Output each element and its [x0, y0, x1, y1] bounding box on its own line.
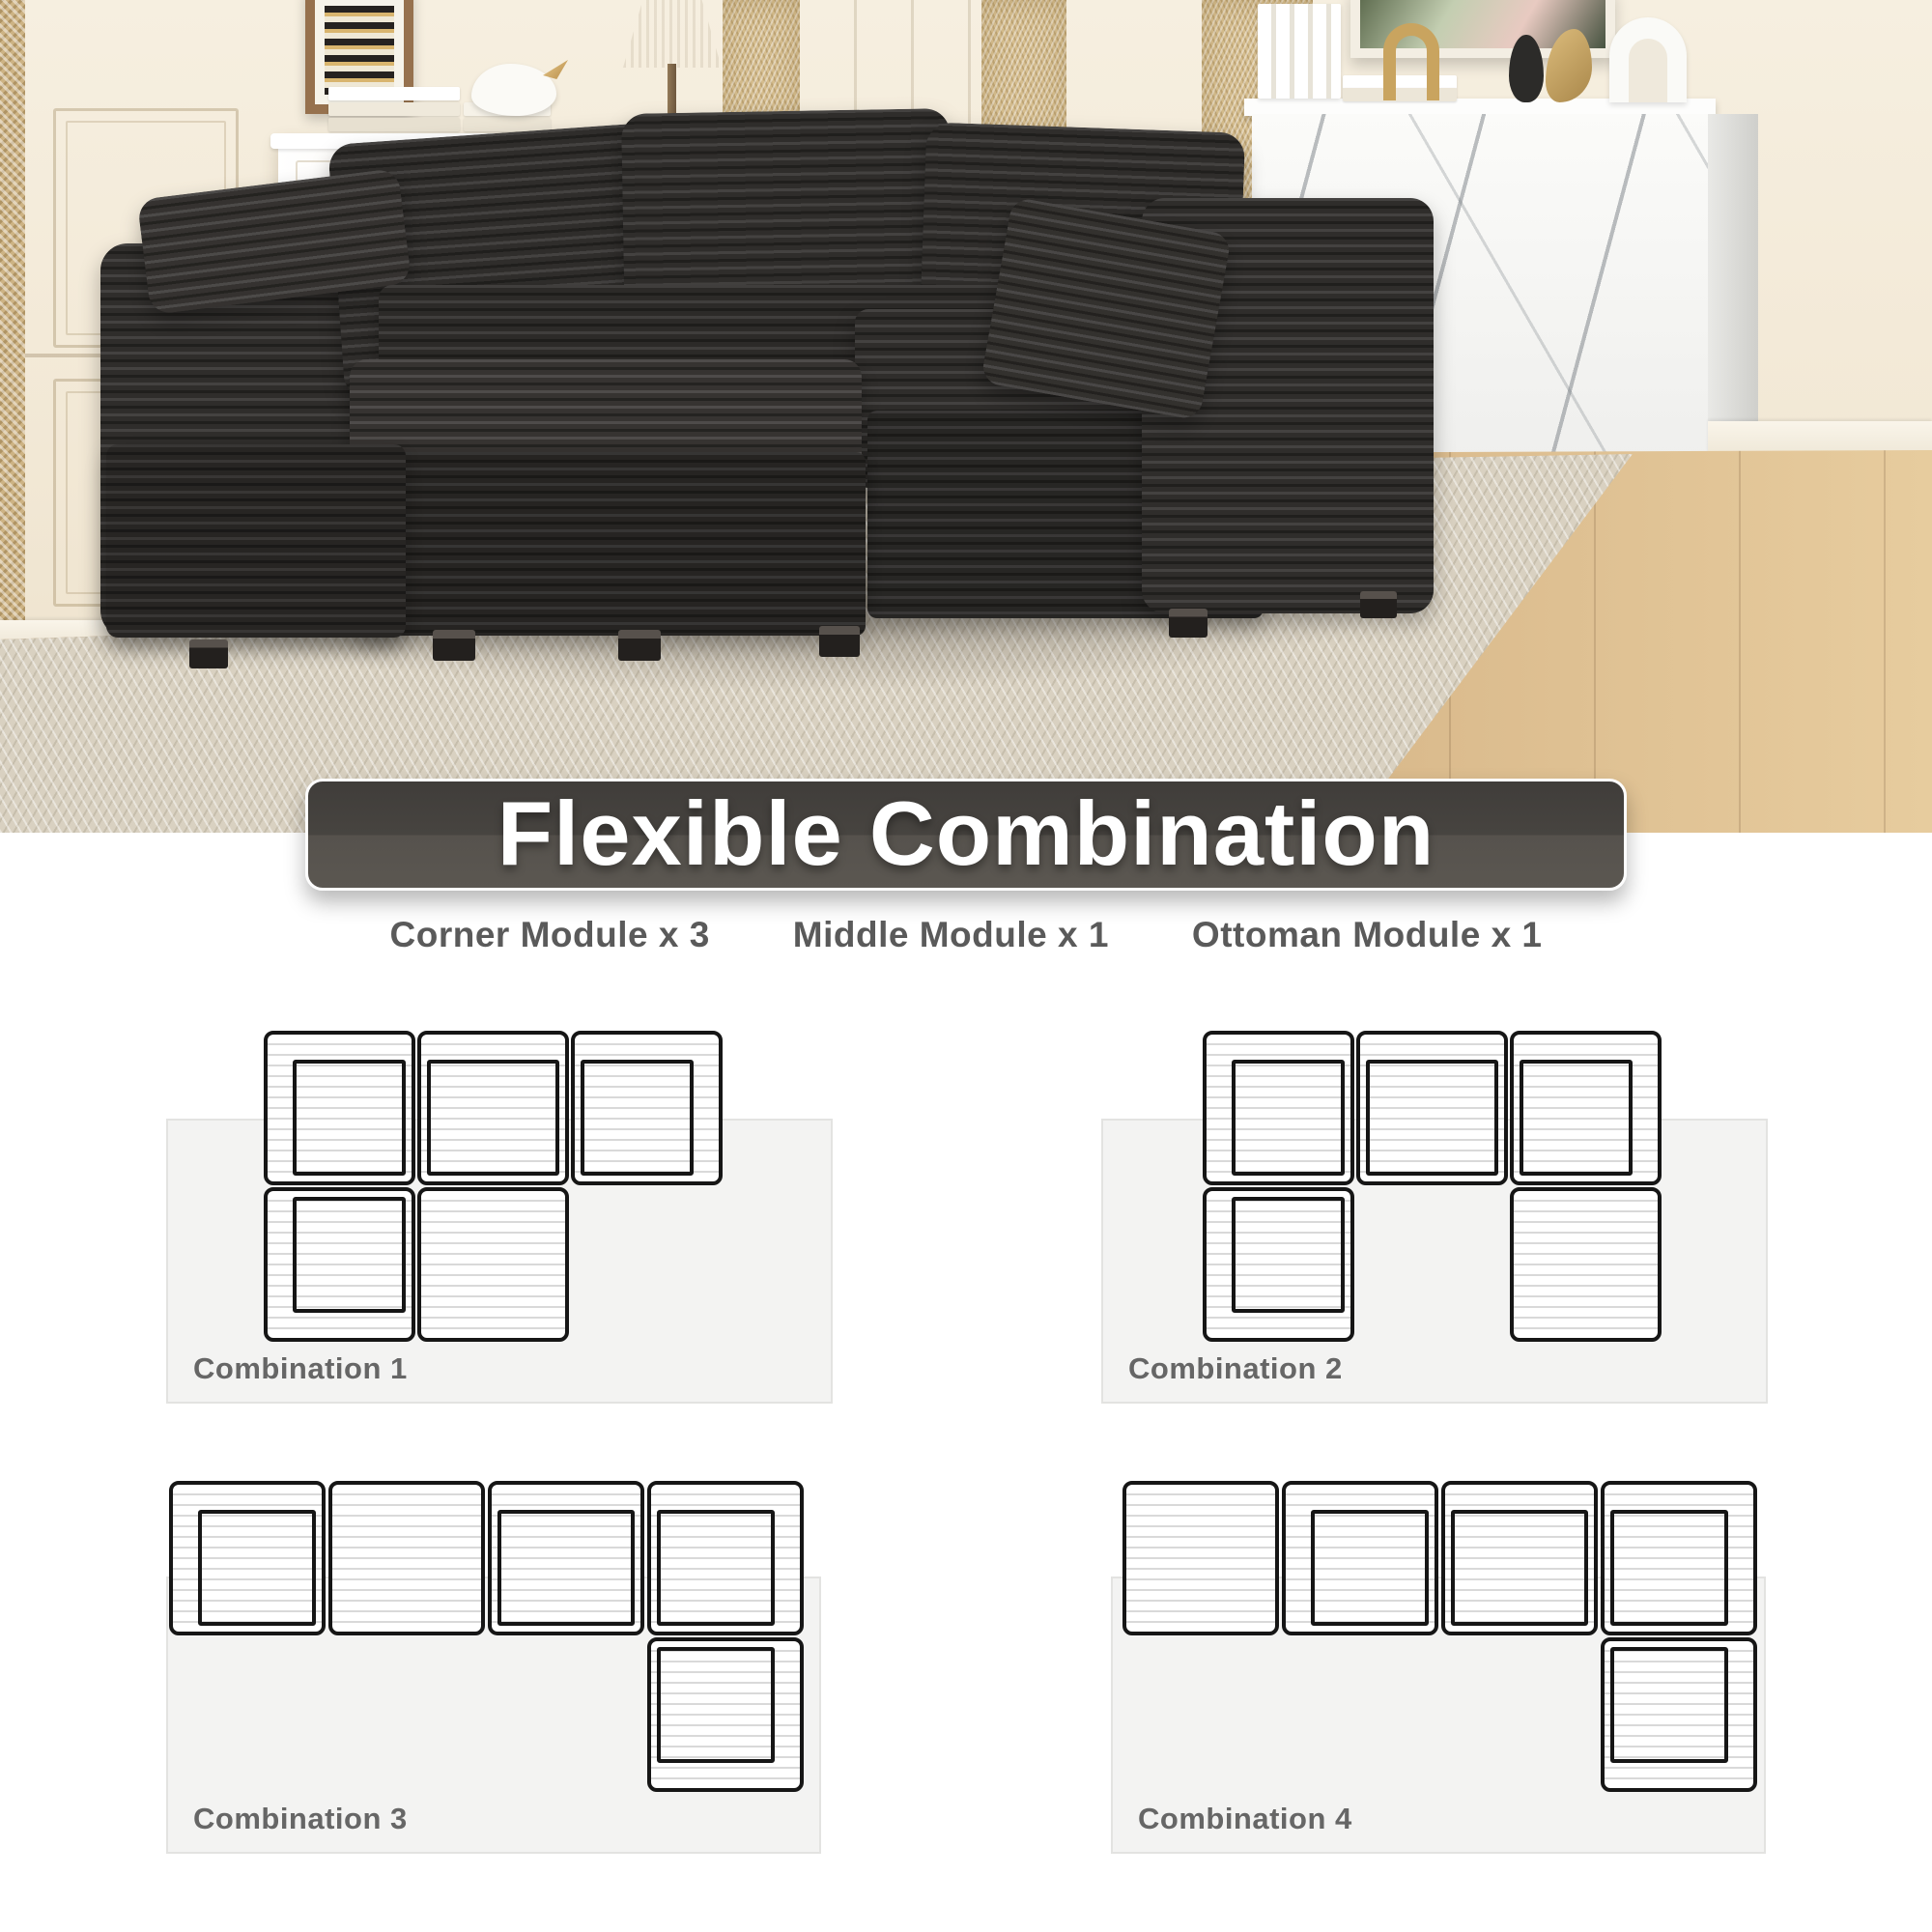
- module-corner: [647, 1481, 804, 1635]
- books-stack: [328, 87, 460, 135]
- module-seat: [293, 1197, 406, 1313]
- legend-corner-count: Corner Module x 3: [390, 915, 710, 955]
- module-seat: [497, 1510, 635, 1626]
- module-seat: [293, 1060, 406, 1176]
- module-seat: [1366, 1060, 1498, 1176]
- hero-photo: [0, 0, 1932, 833]
- module-middle: [1441, 1481, 1598, 1635]
- figurine-horn: [543, 60, 568, 79]
- module-seat: [198, 1510, 316, 1626]
- ottoman-front: [355, 452, 866, 636]
- figurine: [471, 64, 556, 116]
- module-seat: [1232, 1197, 1345, 1313]
- module-ottoman: [1122, 1481, 1279, 1635]
- module-seat: [1232, 1060, 1345, 1176]
- module-seat: [1520, 1060, 1633, 1176]
- books-upright: [1258, 4, 1341, 99]
- combination-2-label: Combination 2: [1128, 1351, 1343, 1386]
- sofa-right-pillow: [980, 197, 1232, 421]
- wall-art: [325, 6, 394, 95]
- module-corner: [1601, 1637, 1757, 1792]
- combination-4-label: Combination 4: [1138, 1802, 1352, 1836]
- baseboard: [1708, 421, 1932, 454]
- sofa-foot: [189, 639, 228, 668]
- module-corner: [1203, 1031, 1354, 1185]
- module-seat: [1610, 1510, 1728, 1626]
- floor-lamp-shade: [623, 0, 722, 68]
- sofa-foot: [1360, 591, 1397, 618]
- module-ottoman: [328, 1481, 485, 1635]
- module-corner: [1510, 1031, 1662, 1185]
- banner-title: Flexible Combination: [308, 781, 1624, 886]
- sofa-left-front: [106, 444, 406, 638]
- legend-middle-count: Middle Module x 1: [793, 915, 1109, 955]
- module-seat: [581, 1060, 694, 1176]
- module-legend: Corner Module x 3 Middle Module x 1 Otto…: [0, 904, 1932, 966]
- module-corner: [1601, 1481, 1757, 1635]
- module-middle: [488, 1481, 644, 1635]
- module-seat: [427, 1060, 559, 1176]
- module-ottoman: [1510, 1187, 1662, 1342]
- module-corner: [169, 1481, 326, 1635]
- sofa-foot: [433, 630, 475, 661]
- module-seat: [1610, 1647, 1728, 1763]
- sofa-foot: [618, 630, 661, 661]
- module-seat: [657, 1647, 775, 1763]
- sofa-foot: [819, 626, 860, 657]
- sofa-foot: [1169, 609, 1207, 638]
- legend-ottoman-count: Ottoman Module x 1: [1192, 915, 1543, 955]
- combination-1-label: Combination 1: [193, 1351, 408, 1386]
- combination-3-label: Combination 3: [193, 1802, 408, 1836]
- module-corner: [1282, 1481, 1438, 1635]
- module-ottoman: [417, 1187, 569, 1342]
- module-corner: [1203, 1187, 1354, 1342]
- module-seat: [1311, 1510, 1429, 1626]
- gold-arch-sculpture: [1383, 23, 1439, 100]
- white-arch-decor: [1609, 17, 1687, 102]
- module-middle: [417, 1031, 569, 1185]
- product-infographic: Flexible Combination Corner Module x 3 M…: [0, 0, 1932, 1932]
- module-seat: [1451, 1510, 1588, 1626]
- section-banner: Flexible Combination: [305, 779, 1627, 891]
- module-seat: [657, 1510, 775, 1626]
- module-corner: [571, 1031, 723, 1185]
- module-corner: [264, 1031, 415, 1185]
- module-middle: [1356, 1031, 1508, 1185]
- module-corner: [647, 1637, 804, 1792]
- module-corner: [264, 1187, 415, 1342]
- wall-texture-strip: [0, 0, 25, 620]
